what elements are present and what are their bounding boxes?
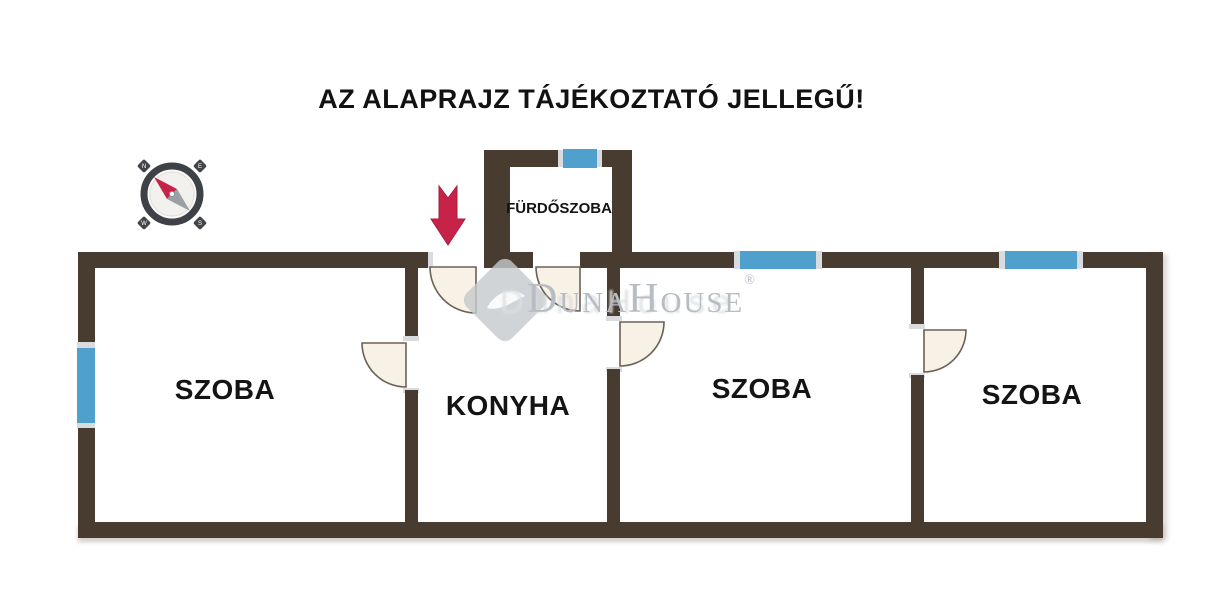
disclaimer-title: AZ ALAPRAJZ TÁJÉKOZTATÓ JELLEGŰ! — [0, 84, 1183, 115]
compass-needle-north — [154, 177, 177, 199]
floorplan-canvas: AZ ALAPRAJZ TÁJÉKOZTATÓ JELLEGŰ! — [0, 0, 1217, 600]
szoba-middle-door-arc — [620, 322, 664, 366]
compass-w-label: W — [141, 221, 147, 227]
wall-top-mid-right-segment — [817, 252, 1005, 268]
wall-under-bathroom-right — [580, 252, 612, 268]
bathroom-window-symbol — [563, 149, 597, 168]
szoba-right-door-arc — [924, 330, 966, 372]
wall-right — [1146, 252, 1163, 538]
door-jamb-a-top — [403, 336, 419, 341]
room-label-szoba-left: SZOBA — [115, 374, 335, 406]
wall-top-left-segment — [78, 252, 428, 268]
entrance-door-jamb — [428, 252, 433, 268]
right-room-window-symbol — [1005, 251, 1078, 269]
entrance-arrow-icon — [431, 186, 465, 245]
left-window-symbol — [77, 348, 95, 424]
room-label-szoba-middle: SZOBA — [652, 373, 872, 405]
registered-mark: ® — [744, 273, 755, 288]
bathroom-wall-top-right — [598, 150, 632, 167]
compass-e-label: E — [198, 164, 202, 170]
wall-bottom — [78, 522, 1163, 538]
room-label-konyha: KONYHA — [398, 390, 618, 422]
wall-szoba-konyha-upper — [405, 268, 418, 340]
szoba-left-door-arc — [362, 343, 406, 387]
compass-n-label: N — [142, 164, 146, 170]
wall-under-bathroom-left — [510, 252, 533, 268]
mid-room-window-symbol — [740, 251, 817, 269]
wall-szoba-szoba-upper — [911, 268, 924, 328]
watermark-brand-text: DunaHouse® — [527, 274, 755, 320]
bathroom-wall-top-left — [484, 150, 563, 167]
right-window-cap-right — [1077, 251, 1083, 269]
entrance-door-arc — [430, 267, 476, 313]
mid-window-cap-right — [816, 251, 822, 269]
compass-needle-south — [167, 189, 190, 211]
door-jamb-c-top — [909, 324, 925, 329]
wall-top-mid-segment — [632, 252, 740, 268]
compass-s-label: S — [198, 221, 202, 227]
room-label-furdoszoba: FÜRDŐSZOBA — [474, 200, 644, 217]
watermark-brand-name: DunaHouse — [527, 276, 744, 322]
wall-left-upper — [78, 252, 95, 348]
compass-icon: N E W S — [137, 159, 207, 230]
room-label-szoba-right: SZOBA — [922, 379, 1142, 411]
